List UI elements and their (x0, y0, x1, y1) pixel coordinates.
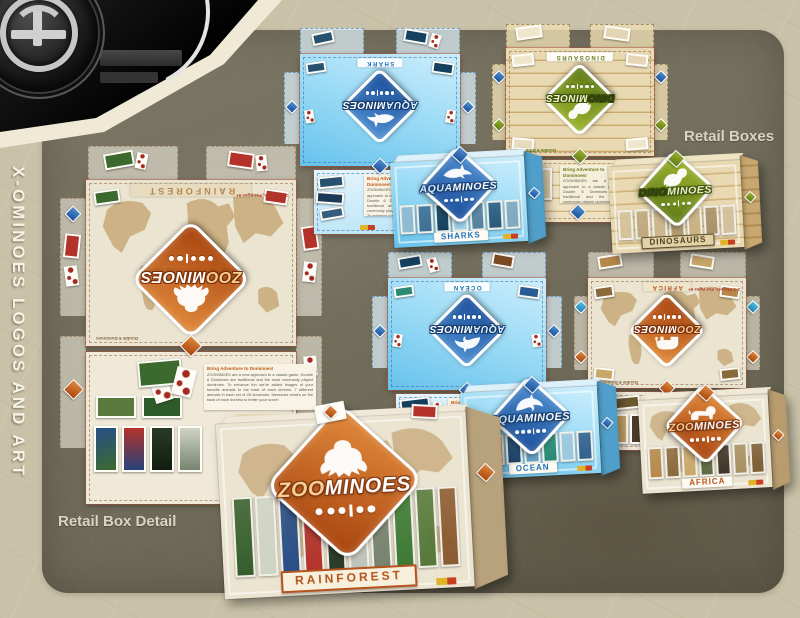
shark-photo-stamp (431, 61, 454, 76)
macaw-photo-stamp (411, 404, 438, 419)
marketing-blurb: Bring Adventure to Dominoes! ZOOMINOES a… (204, 364, 316, 410)
players-note: 2-4 Players, For Ages 6+ (236, 192, 288, 197)
butterfly-photo (94, 426, 118, 472)
brand-wordmark: ZOOMINOES (116, 268, 266, 284)
domino-pips-stamp (255, 154, 268, 171)
domino-window (504, 199, 521, 230)
publisher-diamond-stamp (570, 204, 587, 221)
dinominoes-diamond-logo: DINOMINOES (550, 70, 610, 130)
region-label: OCEAN (508, 462, 556, 475)
region-tab: SHARK (358, 58, 403, 67)
region-tab: DINOSAURS (547, 52, 613, 61)
region-label: SHARKS (434, 230, 488, 243)
publisher-logo (748, 479, 763, 485)
frog-icon (162, 281, 220, 316)
box-lid-panel: DINOSAURS Double 6 Dominoes DINOMINOES (506, 48, 654, 156)
shark-photo-stamp (317, 175, 344, 190)
domino-window (720, 204, 737, 235)
aquaminoes-mini-diamond (528, 187, 541, 200)
domino-window (399, 204, 416, 235)
fossil-photo-stamp (511, 53, 534, 67)
retail-box-zoominoes-africa: ZOOMINOES AFRICA (637, 386, 790, 494)
region-tab: RAINFOREST (131, 184, 252, 197)
domino-window (414, 487, 438, 568)
retail-box-zoominoes-rainforest: ZOOMINOES RAINFOREST (215, 403, 508, 600)
brand-wordmark: AQUAMINOES (419, 323, 516, 333)
lion-photo-stamp (613, 395, 640, 411)
players-note: 2-4 Players, For Ages 6+ (688, 286, 740, 291)
dinosaur-skeleton-icon (562, 101, 598, 123)
brand-wordmark: AQUAMINOES (408, 180, 508, 196)
box-lid-panel: SHARK AQUAMINOES (300, 54, 460, 166)
region-tab: OCEAN (444, 282, 489, 291)
shark-photo-stamp (316, 191, 345, 205)
brand-wordmark: ZOOMINOES (619, 323, 716, 333)
retail-box-dinominoes-dinosaurs: DINOMINOES DINOSAURS (608, 152, 763, 254)
zoominoes-diamond-logo: ZOOMINOES (143, 232, 239, 328)
shark-photo-stamp (319, 206, 345, 221)
domino-window (232, 496, 256, 577)
region-label: DINOSAURS (641, 233, 715, 249)
domino-window (749, 441, 766, 474)
emblem-detail (11, 5, 67, 61)
box-front-face: DINOMINOES DINOSAURS (608, 160, 744, 254)
turtle-photo-stamp (393, 285, 414, 299)
publisher-logo (503, 233, 518, 239)
domino-pips-stamp (392, 333, 403, 347)
domino-window (647, 446, 664, 479)
animal-photo-stamp (227, 150, 255, 169)
brand-wordmark: DINOMINOES (533, 93, 627, 103)
fish-photo-stamp (517, 285, 540, 300)
box-lid-panel: AFRICA 2-4 Players, For Ages 6+ Double 6… (588, 278, 746, 388)
box-front-face: AQUAMINOES SHARKS (390, 156, 528, 248)
aquaminoes-diamond-logo: AQUAMINOES (349, 76, 411, 138)
domino-pips-stamp (64, 265, 80, 287)
retail-boxes-label: Retail Boxes (684, 128, 774, 145)
zoominoes-mini-diamond (476, 463, 496, 483)
macaw-photo (122, 426, 146, 472)
sidebar-title: X-OMINOES LOGOS AND ART (8, 166, 28, 606)
monkey-photo (178, 426, 202, 472)
domino-pips-stamp (531, 333, 542, 347)
zoominoes-diamond-logo: ZOOMINOES (277, 415, 412, 550)
aquaminoes-mini-diamond (601, 417, 614, 430)
edition-note: Double 6 Dominoes (96, 335, 138, 340)
domino-pips (561, 83, 599, 91)
domino-pips (360, 89, 400, 97)
domino-pips-stamp (304, 109, 315, 123)
box-front-face: ZOOMINOES RAINFOREST (216, 411, 475, 599)
elephant-icon (648, 332, 685, 354)
box-lid-panel: RAINFOREST 2-4 Players, For Ages 6+ Doub… (86, 180, 296, 346)
fossil-photo-stamp (626, 137, 649, 151)
box-lid-panel: OCEAN AQUAMINOES (388, 278, 546, 390)
domino-pips-stamp (445, 109, 456, 123)
domino-window (577, 430, 595, 461)
domino-pips (647, 313, 687, 321)
brand-wordmark: AQUAMINOES (332, 99, 429, 109)
animal-photo-stamp (719, 367, 740, 381)
shark-photo-stamp (305, 61, 326, 75)
zoominoes-mini-diamond (772, 429, 785, 442)
animal-photo (96, 396, 136, 418)
region-tab: AFRICA (643, 282, 691, 291)
animal-photo-stamp (63, 233, 81, 259)
shark-icon (361, 108, 398, 130)
domino-window (437, 486, 461, 567)
retail-box-aquaminoes-sharks: AQUAMINOES SHARKS (390, 148, 547, 248)
retail-box-detail-label: Retail Box Detail (58, 513, 176, 530)
aquaminoes-diamond-logo: AQUAMINOES (436, 300, 498, 362)
domino-window (617, 209, 634, 240)
dolphin-icon (448, 332, 485, 354)
publisher-logo (577, 465, 592, 471)
page: RAINFOREST 2-4 Players, For Ages 6+ Doub… (0, 0, 800, 618)
domino-pips-stamp (302, 261, 317, 282)
box-front-face: ZOOMINOES AFRICA (638, 394, 773, 494)
domino-window (255, 495, 279, 576)
brand-wordmark: DINOMINOES (625, 184, 725, 200)
publisher-logo (720, 239, 735, 245)
domino-pips (160, 252, 221, 264)
publisher-logo (437, 577, 457, 585)
fossil-photo-stamp (625, 53, 648, 67)
logo-bar (100, 72, 158, 83)
domino-pips (447, 313, 487, 321)
logo-bar (100, 50, 182, 66)
zoominoes-diamond-logo: ZOOMINOES (636, 300, 698, 362)
dinominoes-mini-diamond (744, 191, 757, 204)
toucan-photo (150, 426, 174, 472)
publisher-logo (360, 225, 375, 230)
